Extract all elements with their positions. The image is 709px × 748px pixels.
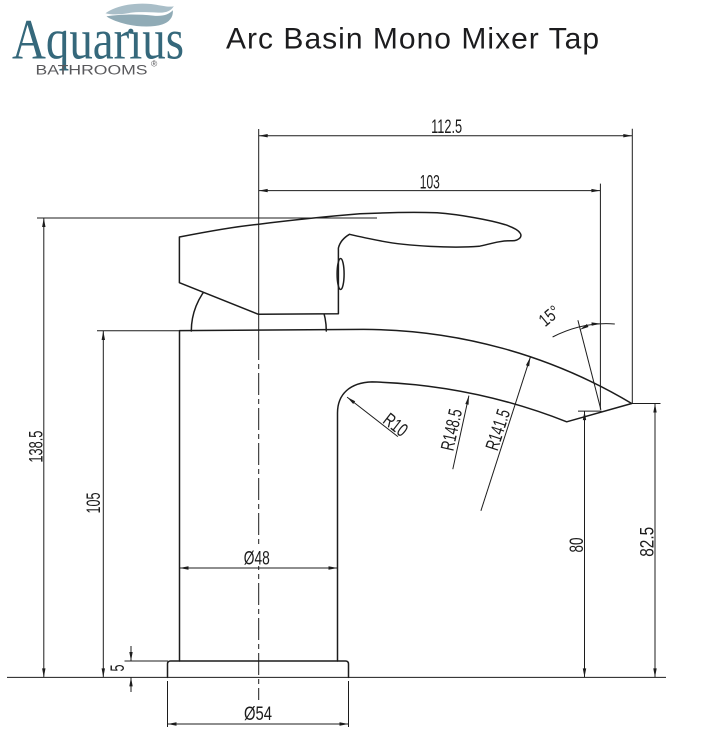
svg-text:5: 5 bbox=[108, 665, 129, 672]
svg-text:80: 80 bbox=[567, 538, 588, 553]
svg-text:105: 105 bbox=[84, 493, 105, 514]
svg-text:Ø48: Ø48 bbox=[244, 549, 270, 570]
svg-text:138.5: 138.5 bbox=[27, 431, 48, 463]
svg-text:112.5: 112.5 bbox=[431, 117, 462, 138]
svg-text:BATHROOMS: BATHROOMS bbox=[36, 62, 148, 78]
svg-text:Ø54: Ø54 bbox=[244, 704, 272, 725]
svg-text:103: 103 bbox=[420, 173, 440, 194]
svg-text:82.5: 82.5 bbox=[638, 527, 659, 557]
svg-text:Arc Basin Mono Mixer Tap: Arc Basin Mono Mixer Tap bbox=[226, 23, 599, 56]
svg-text:®: ® bbox=[151, 59, 158, 69]
